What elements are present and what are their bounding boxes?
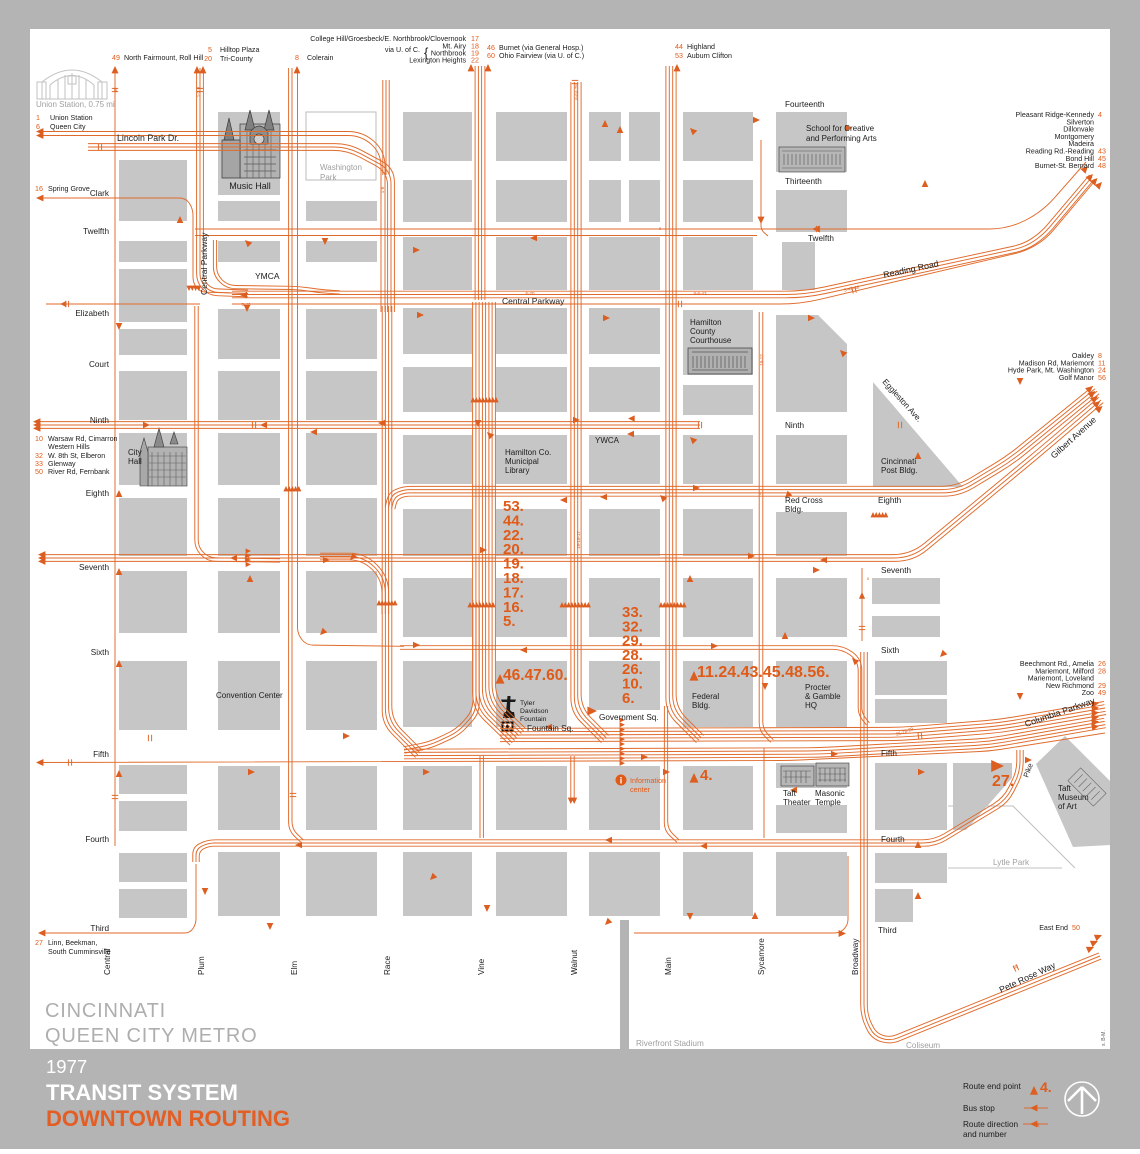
- svg-text:and number: and number: [963, 1130, 1007, 1139]
- svg-text:Glenway: Glenway: [48, 460, 76, 468]
- svg-text:16: 16: [35, 185, 43, 193]
- svg-text:City: City: [128, 448, 142, 457]
- svg-text:via U. of C.: via U. of C.: [385, 46, 420, 54]
- svg-text:Convention Center: Convention Center: [216, 691, 283, 700]
- svg-text:Route direction: Route direction: [963, 1120, 1019, 1129]
- svg-text:North Fairmount, Roll Hill: North Fairmount, Roll Hill: [124, 54, 204, 62]
- svg-text:Race: Race: [383, 955, 392, 975]
- svg-text:Ninth: Ninth: [785, 421, 805, 430]
- svg-text:Museum: Museum: [1058, 793, 1089, 802]
- svg-text:Fifth: Fifth: [93, 750, 109, 759]
- svg-text:Plum: Plum: [197, 956, 206, 975]
- svg-text:Fourteenth: Fourteenth: [785, 100, 825, 109]
- svg-text:1977: 1977: [46, 1056, 87, 1077]
- svg-text:Broadway: Broadway: [851, 938, 860, 975]
- svg-text:Hilltop Plaza: Hilltop Plaza: [220, 46, 259, 54]
- svg-text:32: 32: [35, 452, 43, 460]
- svg-text:6.: 6.: [622, 690, 635, 707]
- svg-text:South Cumminsville: South Cumminsville: [48, 948, 111, 956]
- svg-text:10: 10: [35, 435, 43, 443]
- svg-text:Ninth: Ninth: [90, 416, 110, 425]
- svg-text:5.: 5.: [503, 613, 516, 630]
- svg-text:49: 49: [112, 54, 120, 62]
- svg-text:River Rd, Fernbank: River Rd, Fernbank: [48, 468, 110, 476]
- svg-text:Warsaw Rd, Cimarron: Warsaw Rd, Cimarron: [48, 435, 118, 443]
- svg-text:& Gamble: & Gamble: [805, 692, 841, 701]
- svg-text:Lexington Heights: Lexington Heights: [409, 57, 466, 65]
- svg-text:Tri-County: Tri-County: [220, 55, 253, 63]
- svg-text:s. B-M.: s. B-M.: [1101, 1030, 1107, 1046]
- svg-text:Procter: Procter: [805, 683, 831, 692]
- svg-text:Golf Manor: Golf Manor: [1059, 374, 1095, 382]
- svg-text:49: 49: [113, 87, 118, 93]
- svg-text:Twelfth: Twelfth: [808, 234, 834, 243]
- svg-text:Eighth: Eighth: [86, 489, 110, 498]
- svg-text:Bus stop: Bus stop: [963, 1104, 995, 1113]
- svg-text:Fifth: Fifth: [881, 749, 897, 758]
- svg-text:Bldg.: Bldg.: [785, 505, 803, 514]
- svg-text:22: 22: [471, 57, 479, 65]
- svg-text:27: 27: [35, 939, 43, 947]
- svg-text:Lytle Park: Lytle Park: [993, 858, 1030, 867]
- svg-text:Taft: Taft: [783, 789, 797, 798]
- svg-text:Sixth: Sixth: [881, 646, 900, 655]
- svg-text:Thirteenth: Thirteenth: [785, 177, 822, 186]
- svg-text:Burnet-St. Bernard: Burnet-St. Bernard: [1035, 162, 1094, 170]
- svg-text:Music Hall: Music Hall: [229, 181, 271, 191]
- svg-text:Park: Park: [320, 173, 337, 182]
- svg-text:Lincoln Park Dr.: Lincoln Park Dr.: [117, 133, 179, 143]
- svg-text:46.47.60.: 46.47.60.: [503, 667, 568, 684]
- svg-text:Queen City: Queen City: [50, 123, 86, 131]
- svg-text:Fountain: Fountain: [520, 716, 547, 723]
- svg-text:of Art: of Art: [1058, 802, 1077, 811]
- svg-text:Auburn Clifton: Auburn Clifton: [687, 52, 732, 60]
- svg-text:Information: Information: [630, 776, 666, 785]
- svg-text:Third: Third: [90, 924, 109, 933]
- svg-text:center: center: [630, 785, 651, 794]
- svg-text:Cincinnati: Cincinnati: [881, 457, 916, 466]
- svg-text:Federal: Federal: [692, 692, 719, 701]
- svg-text:YMCA: YMCA: [255, 271, 280, 281]
- svg-text:56: 56: [1098, 374, 1106, 382]
- svg-text:50: 50: [1072, 924, 1080, 932]
- svg-text:Post Bldg.: Post Bldg.: [881, 466, 917, 475]
- svg-text:Route end point: Route end point: [963, 1082, 1022, 1091]
- svg-text:Government Sq.: Government Sq.: [599, 713, 659, 722]
- svg-text:i: i: [620, 776, 623, 786]
- svg-text:Ohio Fairview (via U. of C.): Ohio Fairview (via U. of C.): [499, 52, 584, 60]
- svg-text:Court: Court: [89, 360, 110, 369]
- svg-text:Colerain: Colerain: [307, 54, 333, 62]
- svg-text:50: 50: [35, 468, 43, 476]
- svg-text:Twelfth: Twelfth: [83, 227, 109, 236]
- svg-text:Courthouse: Courthouse: [690, 336, 732, 345]
- svg-text:Main: Main: [664, 957, 673, 975]
- svg-text:Highland: Highland: [687, 43, 715, 51]
- svg-text:TRANSIT SYSTEM: TRANSIT SYSTEM: [46, 1080, 238, 1105]
- svg-text:Theater: Theater: [783, 798, 811, 807]
- svg-text:Red Cross: Red Cross: [785, 496, 823, 505]
- svg-text:Davidson: Davidson: [520, 708, 549, 715]
- svg-text:DOWNTOWN ROUTING: DOWNTOWN ROUTING: [46, 1106, 290, 1131]
- svg-text:53: 53: [675, 52, 683, 60]
- svg-text:Western Hills: Western Hills: [48, 443, 90, 451]
- svg-text:5: 5: [208, 46, 212, 54]
- svg-text:Seventh: Seventh: [881, 566, 911, 575]
- svg-text:{: {: [424, 45, 429, 60]
- svg-text:Washington: Washington: [320, 163, 362, 172]
- svg-text:Hamilton: Hamilton: [690, 318, 722, 327]
- svg-text:Fourth: Fourth: [85, 835, 109, 844]
- svg-text:Walnut: Walnut: [570, 949, 579, 975]
- svg-text:Masonic: Masonic: [815, 789, 845, 798]
- svg-text:YWCA: YWCA: [595, 436, 620, 445]
- svg-text:6-64-78: 6-64-78: [574, 84, 579, 100]
- svg-text:33: 33: [35, 460, 43, 468]
- svg-text:Temple: Temple: [815, 798, 841, 807]
- svg-text:1-8: 1-8: [380, 186, 385, 193]
- svg-text:20: 20: [204, 55, 212, 63]
- svg-text:Spring Grove: Spring Grove: [48, 185, 90, 193]
- svg-text:6: 6: [36, 123, 40, 131]
- svg-text:Coliseum: Coliseum: [906, 1041, 940, 1050]
- svg-text:60: 60: [487, 52, 495, 60]
- svg-text:Third: Third: [878, 926, 897, 935]
- svg-text:4: 4: [1098, 111, 1102, 119]
- svg-text:Sycamore: Sycamore: [757, 938, 766, 975]
- svg-text:Burnet (via General Hosp.): Burnet (via General Hosp.): [499, 44, 583, 52]
- svg-text:1: 1: [36, 114, 40, 122]
- svg-text:Eighth: Eighth: [878, 496, 902, 505]
- svg-text:44: 44: [675, 43, 683, 51]
- svg-text:Riverfront Stadium: Riverfront Stadium: [636, 1039, 704, 1048]
- svg-text:County: County: [690, 327, 715, 336]
- svg-text:HQ: HQ: [805, 701, 817, 710]
- svg-text:Hall: Hall: [128, 457, 142, 466]
- svg-text:Bldg.: Bldg.: [692, 701, 710, 710]
- svg-text:28: 28: [1098, 667, 1106, 675]
- svg-text:Municipal: Municipal: [505, 457, 539, 466]
- svg-text:49: 49: [1098, 689, 1106, 697]
- svg-text:CINCINNATI: CINCINNATI: [45, 1000, 166, 1022]
- svg-text:8: 8: [295, 54, 299, 62]
- svg-text:Fourth: Fourth: [881, 835, 905, 844]
- svg-text:4.: 4.: [700, 767, 713, 784]
- svg-text:Clark: Clark: [90, 189, 110, 198]
- svg-text:Linn, Beekman,: Linn, Beekman,: [48, 939, 97, 947]
- svg-text:Central Parkway: Central Parkway: [199, 232, 209, 295]
- svg-text:48: 48: [1098, 162, 1106, 170]
- svg-text:8-6-43: 8-6-43: [693, 291, 707, 296]
- svg-text:x: x: [1036, 1122, 1040, 1129]
- svg-text:Fountain Sq.: Fountain Sq.: [527, 724, 573, 733]
- svg-text:27.: 27.: [992, 773, 1014, 790]
- svg-text:Union Station, 0.75 mi: Union Station, 0.75 mi: [36, 100, 115, 109]
- svg-text:Elm: Elm: [290, 961, 299, 975]
- svg-text:Sixth: Sixth: [91, 648, 110, 657]
- svg-text:East End: East End: [1039, 924, 1068, 932]
- svg-text:Elizabeth: Elizabeth: [75, 309, 109, 318]
- svg-text:Tyler: Tyler: [520, 700, 535, 707]
- svg-text:4.: 4.: [1040, 1079, 1052, 1095]
- svg-text:and Performing Arts: and Performing Arts: [806, 134, 877, 143]
- svg-text:46: 46: [487, 44, 495, 52]
- svg-text:QUEEN CITY METRO: QUEEN CITY METRO: [45, 1025, 257, 1047]
- svg-text:10-12: 10-12: [759, 354, 764, 366]
- svg-text:Library: Library: [505, 466, 529, 475]
- svg-text:School for Creative: School for Creative: [806, 124, 875, 133]
- svg-text:Central Parkway: Central Parkway: [502, 296, 565, 306]
- svg-text:W. 8th St, Elberon: W. 8th St, Elberon: [48, 452, 105, 460]
- svg-text:Seventh: Seventh: [79, 563, 109, 572]
- svg-text:1-2-8: 1-2-8: [196, 86, 201, 97]
- svg-text:Vine: Vine: [477, 958, 486, 975]
- svg-text:Taft: Taft: [1058, 784, 1072, 793]
- svg-text:11.24.43.45.48.56.: 11.24.43.45.48.56.: [697, 664, 830, 681]
- svg-text:19-18-17: 19-18-17: [576, 530, 581, 549]
- svg-text:Hamilton Co.: Hamilton Co.: [505, 448, 551, 457]
- svg-text:Union Station: Union Station: [50, 114, 93, 122]
